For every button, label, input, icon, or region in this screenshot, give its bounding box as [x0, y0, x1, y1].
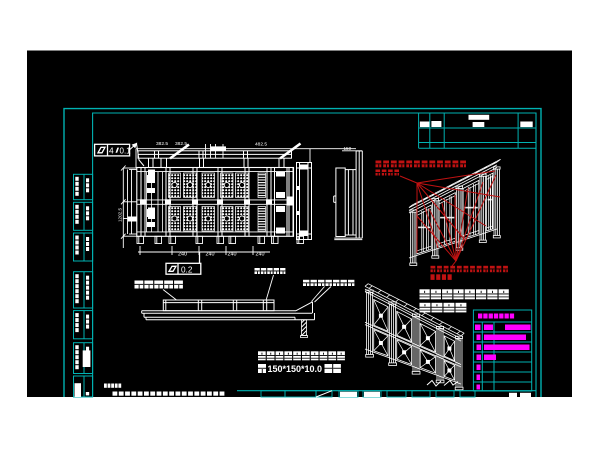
svg-text:150*150*10.0: 150*150*10.0	[268, 364, 323, 374]
svg-text:240: 240	[206, 251, 215, 257]
svg-text:4: 4	[109, 146, 114, 156]
svg-text:240: 240	[228, 251, 237, 257]
svg-text:240: 240	[256, 251, 265, 257]
svg-text:240: 240	[178, 251, 187, 257]
svg-text:0.1: 0.1	[120, 147, 132, 156]
svg-text:482.5: 482.5	[255, 142, 267, 148]
svg-text:1202.5: 1202.5	[118, 208, 123, 222]
svg-text:0.2: 0.2	[181, 265, 193, 274]
svg-text:382.5: 382.5	[156, 141, 168, 147]
